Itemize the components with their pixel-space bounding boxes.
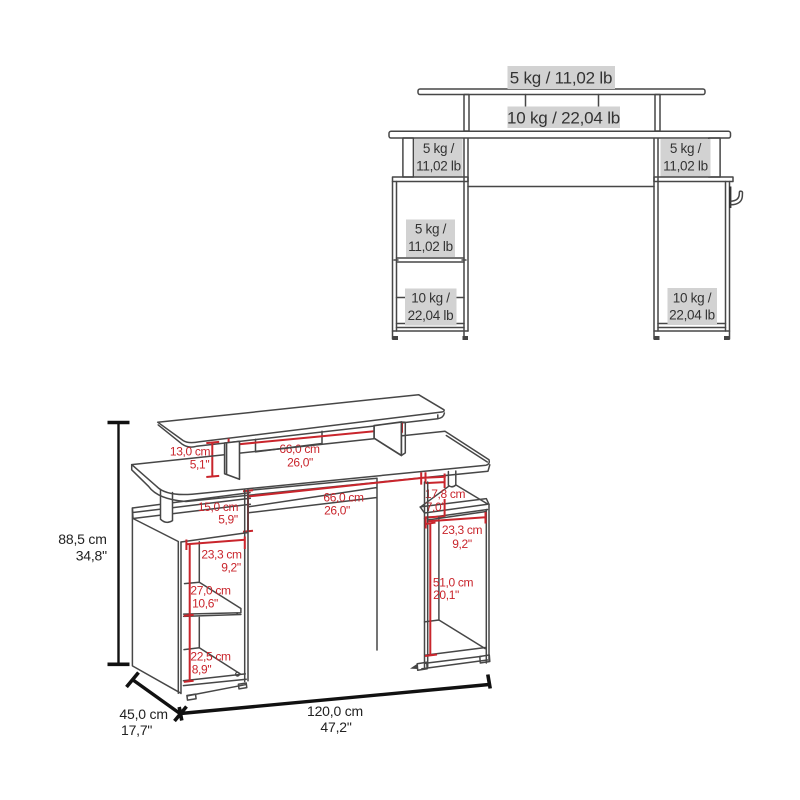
svg-text:11,02 lb: 11,02 lb <box>416 159 461 174</box>
svg-text:22,04 lb: 22,04 lb <box>408 308 454 323</box>
svg-text:10 kg /: 10 kg / <box>411 291 450 306</box>
svg-text:26,0": 26,0" <box>324 504 350 518</box>
svg-text:88,5 cm: 88,5 cm <box>58 531 106 547</box>
svg-text:7,0": 7,0" <box>426 500 446 514</box>
svg-text:10 kg /: 10 kg / <box>673 291 712 306</box>
svg-text:22,5 cm: 22,5 cm <box>190 649 231 663</box>
svg-text:8,9": 8,9" <box>192 662 212 676</box>
svg-text:120,0 cm: 120,0 cm <box>307 703 363 719</box>
svg-text:23,3 cm: 23,3 cm <box>442 523 483 537</box>
svg-text:26,0": 26,0" <box>287 456 313 470</box>
svg-text:17,7": 17,7" <box>121 722 152 738</box>
svg-text:5,1": 5,1" <box>190 458 210 472</box>
svg-text:9,2": 9,2" <box>221 561 241 575</box>
svg-text:20,1": 20,1" <box>433 588 459 602</box>
svg-text:17,8 cm: 17,8 cm <box>425 487 466 501</box>
svg-text:9,2": 9,2" <box>452 537 472 551</box>
svg-text:11,02 lb: 11,02 lb <box>408 239 453 254</box>
svg-text:11,02 lb: 11,02 lb <box>663 159 708 174</box>
svg-text:5 kg /: 5 kg / <box>415 222 447 237</box>
svg-text:47,2": 47,2" <box>320 719 351 735</box>
svg-text:10,6": 10,6" <box>192 596 218 610</box>
svg-text:22,04 lb: 22,04 lb <box>669 308 715 323</box>
svg-text:27,0 cm: 27,0 cm <box>190 583 231 597</box>
svg-text:5 kg /: 5 kg / <box>670 141 702 156</box>
svg-text:45,0 cm: 45,0 cm <box>119 706 167 722</box>
svg-text:5 kg /: 5 kg / <box>423 141 455 156</box>
svg-text:23,3 cm: 23,3 cm <box>201 548 242 562</box>
svg-text:34,8": 34,8" <box>76 548 107 564</box>
svg-text:5,9": 5,9" <box>218 513 238 527</box>
svg-text:66,0 cm: 66,0 cm <box>323 491 364 505</box>
svg-text:5 kg / 11,02 lb: 5 kg / 11,02 lb <box>510 69 613 88</box>
svg-text:10 kg / 22,04 lb: 10 kg / 22,04 lb <box>507 108 620 127</box>
